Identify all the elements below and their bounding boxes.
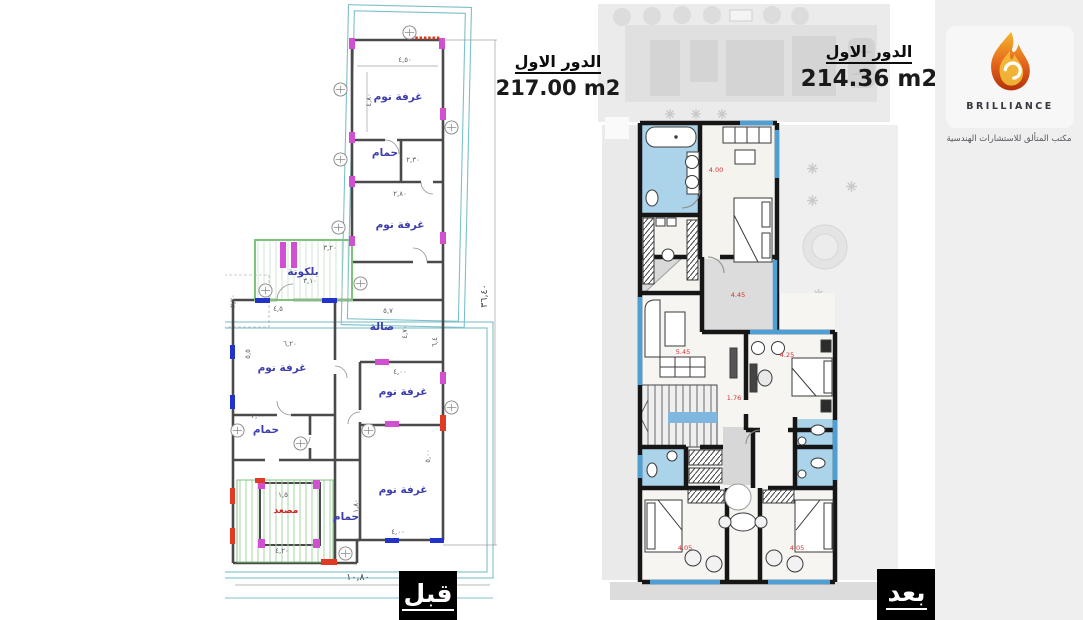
- desk: [750, 364, 757, 392]
- dim: ١,٨٠: [352, 499, 360, 513]
- sink: [752, 342, 765, 355]
- dim: ٢,٧٠: [229, 294, 237, 308]
- dim: ٦,٢٠: [283, 340, 297, 348]
- dim: ٢,٠٠: [251, 412, 265, 420]
- before-tag-label: قبل: [402, 581, 455, 611]
- closet: [689, 450, 722, 465]
- dim: ١,٥: [278, 491, 288, 499]
- toilet: [811, 458, 825, 468]
- desk-chair: [758, 370, 772, 386]
- coffee-table: [665, 312, 685, 346]
- tv-unit: [730, 348, 737, 378]
- room-label-bedroom-mid: غرفة نوم: [379, 386, 428, 398]
- dim: ٥,٧: [383, 307, 393, 315]
- wardrobe: [763, 490, 794, 503]
- after-title-block: الدور الاول 214.36 m2: [793, 42, 945, 92]
- dim: 1.76: [727, 394, 741, 402]
- dim: ٢,٣٠: [406, 156, 420, 164]
- after-area: 214.36 m2: [793, 66, 945, 92]
- after-floor-plan: 4.00 4.45 5.45 4.25 1.76 4.05 4.05: [590, 0, 955, 620]
- dim: ٤,٥٠: [398, 56, 412, 64]
- dim: ٥,٠٠: [424, 449, 432, 463]
- room-label-bedroom-2: غرفة نوم: [376, 219, 425, 231]
- sink: [798, 470, 806, 478]
- dim: ٤,٠٠: [393, 368, 407, 376]
- flame-icon: [981, 30, 1039, 96]
- dim: 4.45: [731, 291, 745, 299]
- dim-total-width: ١٠,٨٠: [346, 572, 369, 583]
- sofa-l: [645, 300, 660, 357]
- room-label-elevator: مصعد: [274, 506, 299, 516]
- dim: ٤,٢٠: [275, 547, 289, 555]
- before-floor-plan: غرفة نوم حمام غرفة نوم بلكونة صالة غرفة …: [225, 0, 505, 620]
- wardrobe: [643, 218, 654, 284]
- stool: [662, 249, 674, 261]
- dim: ٤,٧٠: [401, 325, 409, 339]
- room-label-hall: صالة: [370, 321, 394, 333]
- dim: ٦,٤: [431, 337, 439, 347]
- after-tag-label: بعد: [886, 580, 928, 610]
- dim: ٣,١٠: [303, 277, 317, 285]
- mat: [821, 340, 831, 352]
- room-label-bedroom-left: غرفة نوم: [258, 362, 307, 374]
- bathtub: [646, 127, 696, 147]
- after-title: الدور الاول: [826, 42, 913, 64]
- dim: ٤,٨٠: [365, 93, 373, 107]
- toilet: [646, 190, 658, 206]
- sink: [667, 451, 677, 461]
- toilet: [811, 425, 825, 435]
- armchair: [706, 556, 722, 572]
- after-tag: بعد: [877, 569, 936, 620]
- wardrobe: [688, 490, 724, 503]
- room-label-bath-top: حمام: [372, 147, 398, 159]
- table: [730, 513, 756, 531]
- armchair: [787, 556, 803, 572]
- table: [735, 150, 755, 164]
- logo-caption: مكتب المتألق للاستشارات الهندسية: [935, 134, 1083, 144]
- dim: 4.25: [780, 351, 794, 359]
- dim: 4.05: [790, 544, 804, 552]
- brand-name: BRILLIANCE: [946, 101, 1074, 112]
- sink: [686, 156, 699, 169]
- dim: 5.45: [676, 348, 690, 356]
- toilet: [647, 463, 657, 477]
- sink: [686, 176, 699, 189]
- staircase: [640, 385, 717, 447]
- dim: ٤,٥: [273, 305, 283, 313]
- before-area: 217.00 m2: [492, 76, 624, 100]
- mat: [821, 400, 831, 412]
- armchair: [766, 550, 782, 566]
- dim: ٢,٨٠: [393, 190, 407, 198]
- dim: ٣,٢٠: [323, 244, 337, 252]
- dim: ٥,٥: [244, 349, 252, 359]
- dim-total-height: ٣٦,٤٠: [479, 284, 490, 307]
- armchair: [685, 550, 701, 566]
- dim: ٤,٠٠: [391, 528, 405, 536]
- logo-strip: BRILLIANCE مكتب المتألق للاستشارات الهند…: [935, 0, 1083, 620]
- door-swing: [725, 484, 751, 510]
- before-title-block: الدور الاول 217.00 m2: [492, 52, 624, 100]
- slide-canvas: { "left_panel": { "title": "الدور الاول"…: [0, 0, 1083, 620]
- before-title: الدور الاول: [515, 52, 602, 74]
- logo-card: BRILLIANCE: [946, 26, 1074, 128]
- room-label-bedroom-top: غرفة نوم: [374, 91, 423, 103]
- dim: 4.00: [709, 166, 723, 174]
- room-label-bath-left: حمام: [253, 424, 279, 436]
- wardrobe: [687, 220, 698, 280]
- before-tag: قبل: [399, 571, 457, 620]
- room-label-bedroom-bottom: غرفة نوم: [379, 484, 428, 496]
- dim: 4.05: [678, 544, 692, 552]
- sink: [798, 437, 806, 445]
- closet: [689, 468, 722, 483]
